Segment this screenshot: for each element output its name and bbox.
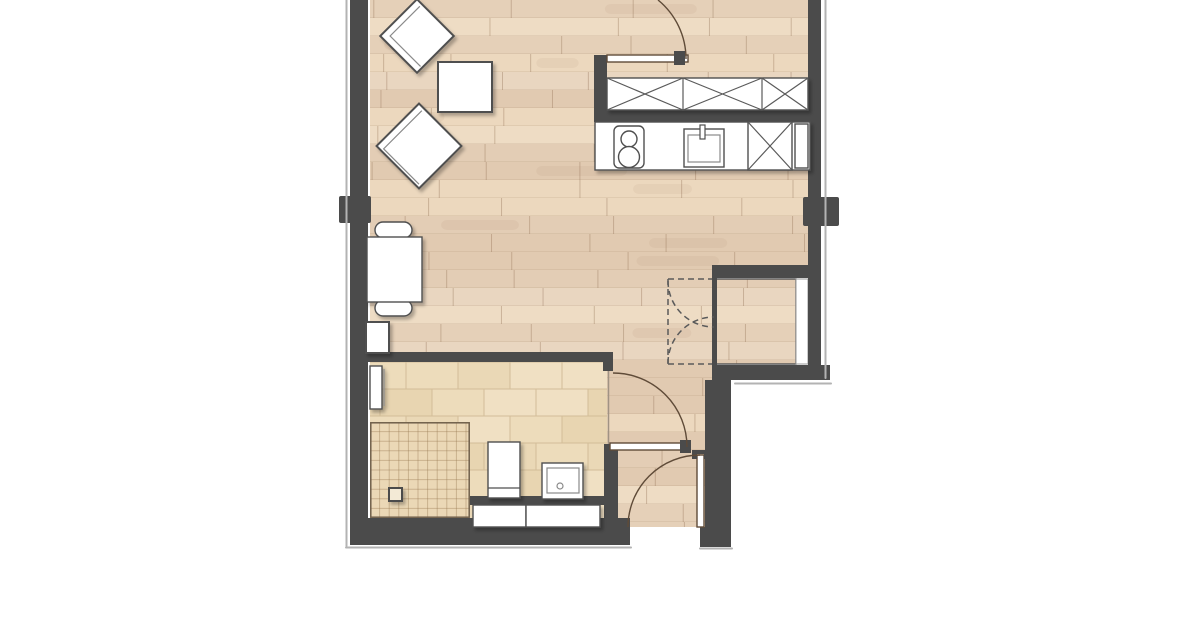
entry-door-leaf	[697, 455, 704, 527]
wall-niche-top	[712, 265, 821, 278]
top-door-hinge	[674, 51, 685, 65]
washbasin-drain	[557, 483, 563, 489]
stove-burner-large	[619, 147, 640, 168]
bathroom-door-leaf	[610, 443, 687, 450]
wall-niche-bottom	[712, 365, 830, 380]
wall-bath-door-stub-bottom	[604, 444, 618, 527]
floor-plan	[0, 0, 1200, 628]
side-table	[438, 62, 492, 112]
wall-right	[808, 0, 821, 380]
bath-cabinet-1	[473, 505, 526, 527]
wall-niche-left	[712, 278, 717, 365]
shower-drain	[389, 488, 402, 501]
dining-chair-top	[375, 222, 412, 238]
bath-cabinet-2	[526, 505, 600, 527]
dining-table	[367, 237, 422, 302]
entry-door-hinge-r	[704, 450, 709, 459]
wall-bath-door-stub-top	[603, 362, 613, 371]
wall-kitchen-stub	[594, 55, 607, 111]
wall-left	[350, 0, 368, 545]
bath-radiator	[370, 366, 382, 409]
shower-floor	[370, 422, 470, 518]
wall-entry-jamb	[700, 527, 731, 547]
wall-kitchen-back	[594, 110, 810, 122]
kitchen	[595, 78, 810, 170]
floor-plan-canvas	[0, 0, 1200, 628]
living-radiator	[366, 322, 389, 353]
wall-bathroom-top	[366, 352, 613, 362]
niche-window	[796, 279, 808, 364]
wall-cabinets	[607, 78, 808, 110]
wall-pier-left	[339, 196, 371, 223]
wall-pier-right	[803, 197, 839, 226]
counter-end	[795, 124, 808, 168]
wall-lower-right	[705, 380, 731, 547]
bathroom-door-hinge	[680, 440, 691, 453]
stove-burner-small	[621, 131, 637, 147]
toilet	[488, 442, 520, 498]
kitchen-faucet	[700, 125, 705, 139]
